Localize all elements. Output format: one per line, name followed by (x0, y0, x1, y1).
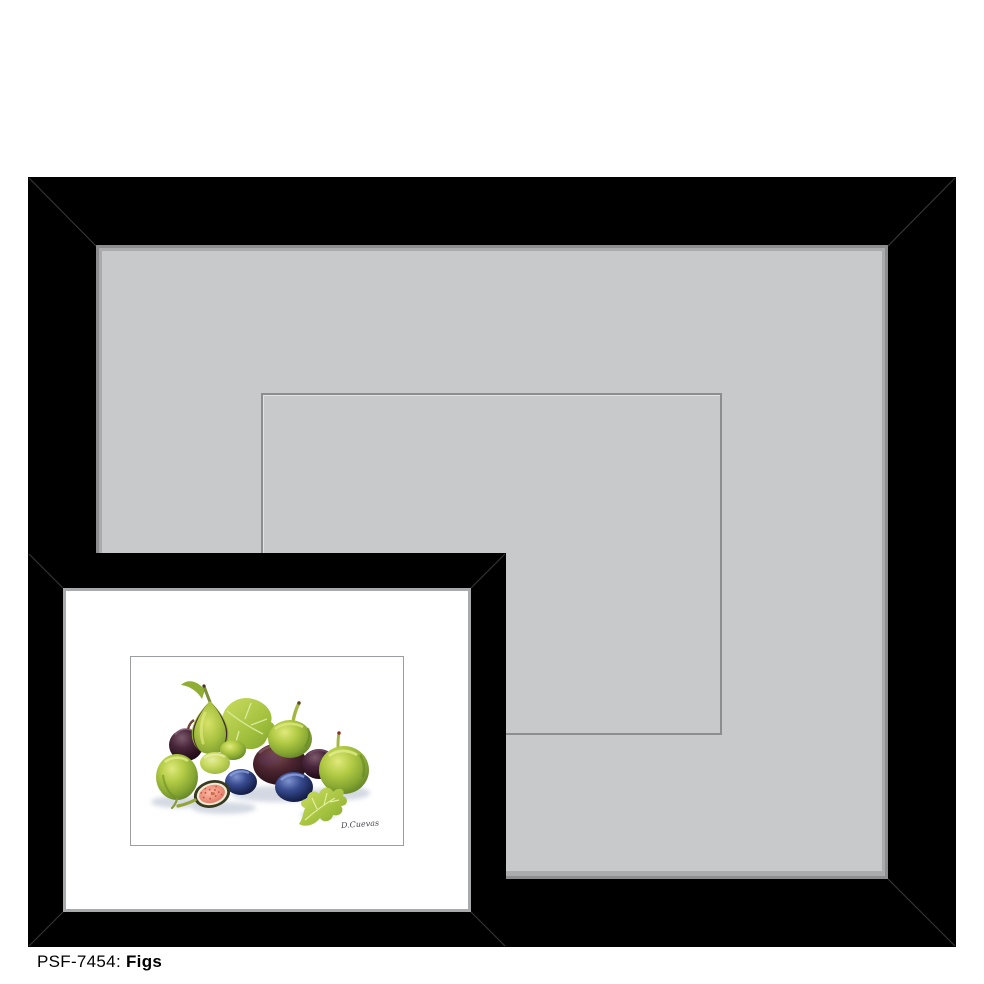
green-fig-top-right (268, 701, 312, 758)
pear-fig (192, 684, 229, 754)
artist-signature: D.Cuevas (340, 818, 380, 830)
figs-painting: D.Cuevas (131, 657, 403, 845)
product-image: D.Cuevas PSF-7454: Figs (0, 0, 984, 984)
green-fig-right (319, 731, 369, 794)
product-code: PSF-7454: (37, 952, 121, 971)
product-title: Figs (126, 952, 162, 971)
caption: PSF-7454: Figs (37, 953, 162, 972)
artwork-print: D.Cuevas (131, 657, 403, 845)
yellow-green-fig (200, 752, 230, 774)
